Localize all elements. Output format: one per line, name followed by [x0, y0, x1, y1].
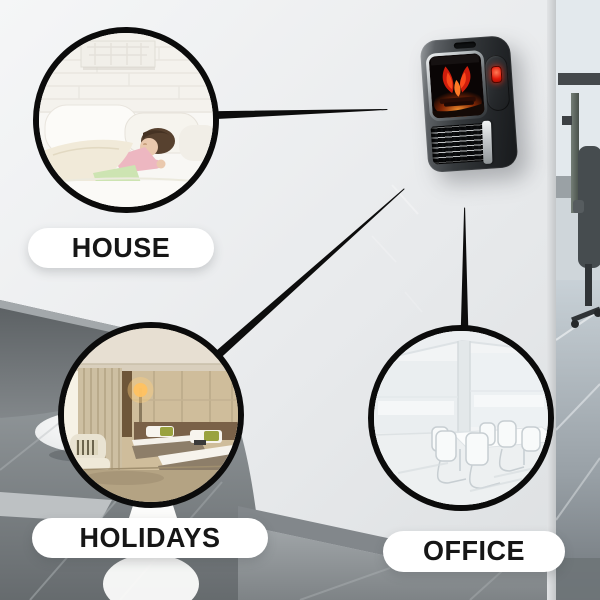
holidays-label: HOLIDAYS: [79, 522, 220, 554]
office-photo: [374, 331, 548, 505]
control-panel: [484, 54, 511, 111]
corner-column: [458, 341, 470, 433]
window-frame-bar: [558, 73, 600, 85]
house-photo-circle: [33, 27, 219, 213]
holidays-label-pill: HOLIDAYS: [32, 518, 268, 558]
house-label: HOUSE: [72, 232, 171, 264]
advert-canvas: HOUSE HOLIDAYS OFFICE: [0, 0, 600, 600]
power-button: [490, 66, 502, 84]
armchair: [68, 434, 110, 471]
office-label: OFFICE: [423, 536, 525, 568]
right-room-scene: [556, 0, 600, 600]
wall-shelf-decor: [81, 41, 155, 70]
desk-edge: [556, 176, 573, 198]
wall-edge: [547, 0, 556, 600]
flame-display: [429, 53, 485, 118]
office-photo-circle: [368, 325, 554, 511]
holidays-photo-circle: [58, 322, 244, 508]
wood-pillar: [122, 371, 132, 437]
office-label-pill: OFFICE: [383, 531, 565, 572]
flame-display-frame: [425, 50, 488, 122]
product-heater: [420, 35, 519, 173]
hanger-notch-icon: [454, 41, 476, 49]
holidays-photo: [64, 328, 238, 502]
pole: [571, 93, 579, 213]
chrome-trim: [482, 121, 492, 164]
house-label-pill: HOUSE: [28, 228, 214, 268]
house-photo: [39, 33, 213, 207]
